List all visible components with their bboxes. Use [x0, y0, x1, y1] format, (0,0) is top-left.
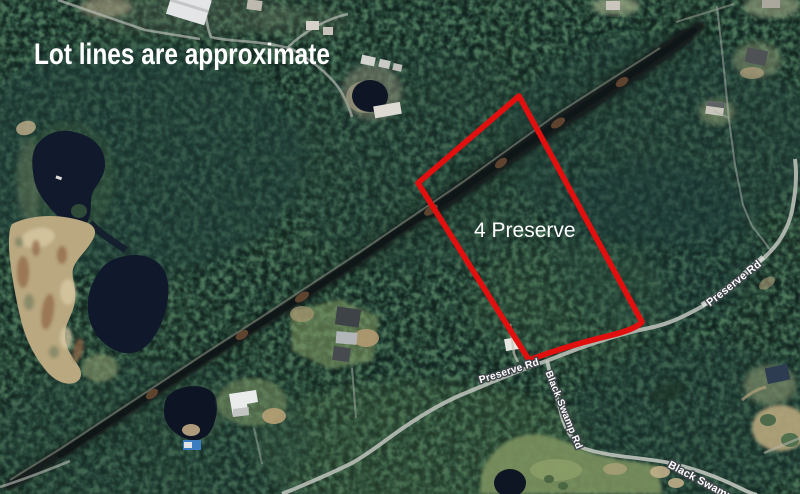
svg-text:Lot lines are approximate: Lot lines are approximate — [34, 38, 330, 71]
svg-text:4 Preserve: 4 Preserve — [474, 219, 576, 242]
